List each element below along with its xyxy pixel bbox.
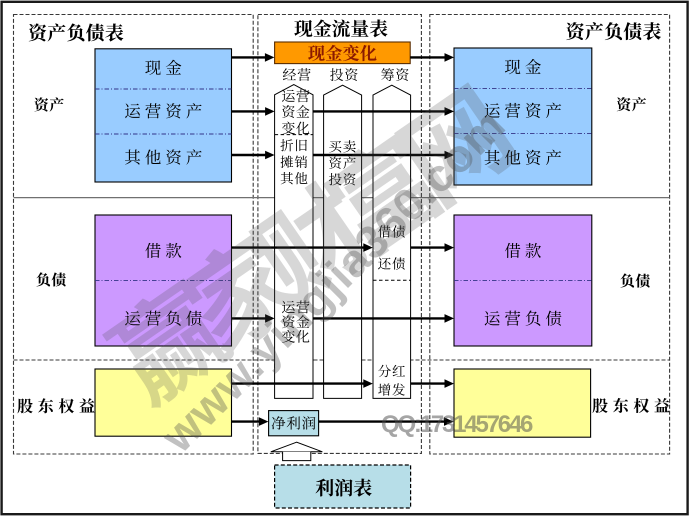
svg-text:QQ:1731457646: QQ:1731457646 bbox=[381, 411, 533, 438]
